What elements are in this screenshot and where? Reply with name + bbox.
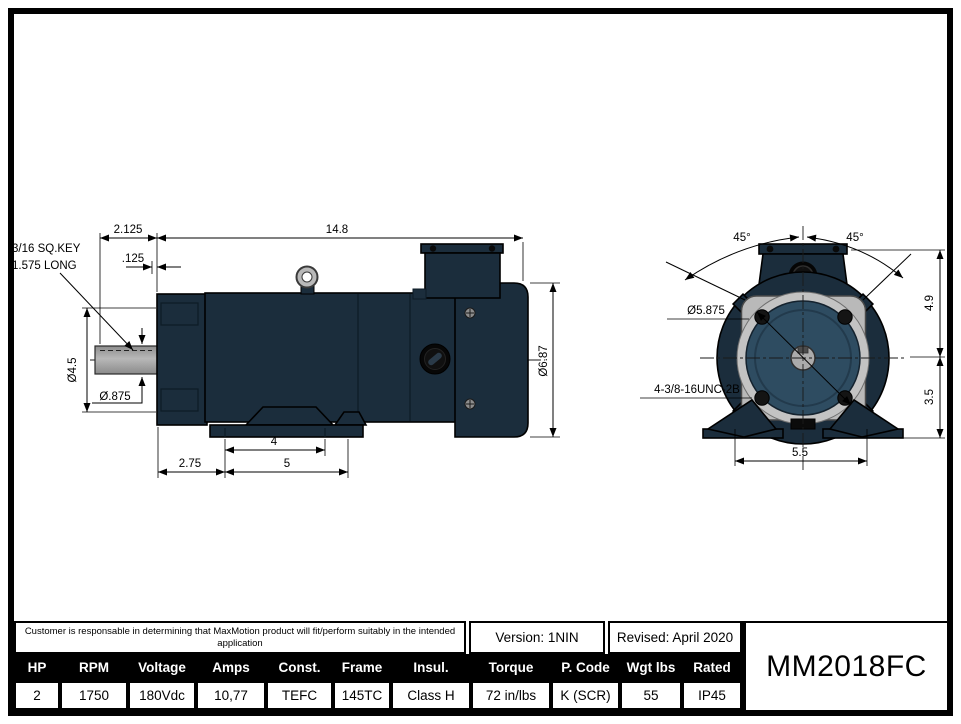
lid-screw-icon <box>767 246 774 253</box>
spec-value-hp: 2 <box>14 681 60 710</box>
dim-flange-to-foot: 2.75 <box>179 458 201 470</box>
drawing-sheet: 2.125 14.8 .125 3/16 SQ.KEY 1.575 LONG Ø… <box>0 0 961 724</box>
dim-pilot-lip: .125 <box>122 253 144 265</box>
dim-foot-holes: 4 <box>271 436 278 448</box>
motor-side-view: 2.125 14.8 .125 3/16 SQ.KEY 1.575 LONG Ø… <box>14 224 560 478</box>
spec-value-row: 2 1750 180Vdc 10,77 TEFC 145TC Class H 7… <box>14 681 742 710</box>
dim-bolt-circle: Ø5.875 <box>687 305 725 317</box>
spec-table: Customer is responsable in determining t… <box>14 621 742 710</box>
lid-screw-icon <box>833 246 840 253</box>
mounting-base <box>210 425 363 437</box>
lid-screw-icon <box>430 245 436 251</box>
cover-screw-icon <box>465 308 475 318</box>
disclaimer-note: Customer is responsable in determining t… <box>14 621 466 654</box>
dim-shaft-extension: 2.125 <box>114 224 143 236</box>
disclaimer-line1: Customer is responsable in determining t… <box>25 626 455 638</box>
eye-bolt-icon <box>297 267 318 295</box>
spec-value-frame: 145TC <box>333 681 391 710</box>
spec-header-frame: Frame <box>333 654 391 681</box>
terminal-box-step <box>413 289 426 299</box>
title-block: Customer is responsable in determining t… <box>14 621 947 710</box>
technical-drawing: 2.125 14.8 .125 3/16 SQ.KEY 1.575 LONG Ø… <box>14 14 947 621</box>
bolt-hole-icon <box>838 310 852 324</box>
spec-value-torque: 72 in/lbs <box>471 681 551 710</box>
spec-value-insul: Class H <box>391 681 471 710</box>
dim-shaft-dia: Ø.875 <box>99 391 130 403</box>
spec-header-insul: Insul. <box>391 654 471 681</box>
spec-value-const: TEFC <box>266 681 333 710</box>
spec-value-wgt: 55 <box>620 681 682 710</box>
thread-note: 4-3/8-16UNC-2B <box>654 384 740 396</box>
spec-value-voltage: 180Vdc <box>128 681 196 710</box>
spec-header-pcode: P. Code <box>551 654 620 681</box>
key-length-note: 1.575 LONG <box>14 260 77 272</box>
motor-front-view: 45° 45° Ø5.875 4-3/8-16UNC-2B 4.9 3.5 5.… <box>640 226 945 470</box>
dim-flange-pilot-dia: Ø4.5 <box>67 358 79 383</box>
spec-value-rpm: 1750 <box>60 681 128 710</box>
model-number: MM2018FC <box>766 650 927 684</box>
dim-height-top: 4.9 <box>924 295 936 311</box>
spec-header-voltage: Voltage <box>128 654 196 681</box>
spec-header-const: Const. <box>266 654 333 681</box>
spec-value-amps: 10,77 <box>196 681 266 710</box>
spec-header-wgt: Wgt lbs <box>620 654 682 681</box>
dim-angle-left: 45° <box>733 232 750 244</box>
dim-foot-width: 5.5 <box>792 447 808 459</box>
spec-header-torque: Torque <box>471 654 551 681</box>
key-note-leader <box>60 273 133 350</box>
bolt-hole-icon <box>838 391 852 405</box>
spec-header-hp: HP <box>14 654 60 681</box>
brush-cap-icon <box>420 344 450 374</box>
bolt-hole-icon <box>755 391 769 405</box>
cover-screw-icon <box>465 399 475 409</box>
spec-value-rated: IP45 <box>682 681 742 710</box>
spec-header-amps: Amps <box>196 654 266 681</box>
revised-cell: Revised: April 2020 <box>608 621 742 654</box>
spec-header-rated: Rated <box>682 654 742 681</box>
spec-header-rpm: RPM <box>60 654 128 681</box>
dim-overall-length: 14.8 <box>326 224 348 236</box>
lid-screw-icon <box>489 245 495 251</box>
spec-value-pcode: K (SCR) <box>551 681 620 710</box>
dim-body-dia: Ø6.87 <box>538 345 550 376</box>
spec-header-row: HP RPM Voltage Amps Const. Frame Insul. … <box>14 654 742 681</box>
dim-height-bottom: 3.5 <box>924 389 936 405</box>
rear-cover <box>455 283 528 437</box>
dim-base-length: 5 <box>284 458 290 470</box>
terminal-box-side <box>425 253 500 298</box>
key-size-note: 3/16 SQ.KEY <box>14 243 81 255</box>
dim-angle-right: 45° <box>846 232 863 244</box>
front-bearing-housing <box>157 294 207 425</box>
version-cell: Version: 1NIN <box>469 621 605 654</box>
disclaimer-line2: application <box>217 638 262 650</box>
title-block-top-row: Customer is responsable in determining t… <box>14 621 742 654</box>
model-number-cell: MM2018FC <box>742 621 947 710</box>
